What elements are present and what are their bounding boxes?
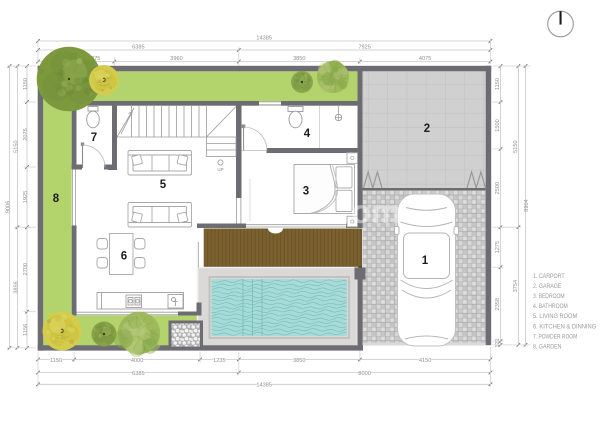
svg-text:1156: 1156 <box>23 324 29 336</box>
svg-text:1925: 1925 <box>23 191 29 203</box>
svg-text:121: 121 <box>495 338 501 347</box>
svg-text:2. GARAGE: 2. GARAGE <box>533 283 561 290</box>
svg-text:3850: 3850 <box>293 56 305 62</box>
svg-text:6: 6 <box>121 251 127 263</box>
svg-text:9006: 9006 <box>6 201 12 213</box>
svg-text:3. BEDROOM: 3. BEDROOM <box>533 293 565 300</box>
svg-text:1500: 1500 <box>495 119 501 131</box>
svg-text:6. KITCHEN & DINNING: 6. KITCHEN & DINNING <box>533 323 596 330</box>
svg-text:3856: 3856 <box>13 281 19 293</box>
svg-text:UP: UP <box>217 167 223 172</box>
svg-text:1150: 1150 <box>23 78 29 90</box>
svg-text:7. POWDER ROOM: 7. POWDER ROOM <box>533 333 577 340</box>
svg-text:1150: 1150 <box>495 78 501 90</box>
svg-text:8. GARDEN: 8. GARDEN <box>533 344 562 351</box>
svg-text:4075: 4075 <box>419 56 431 62</box>
svg-text:1235: 1235 <box>213 358 225 364</box>
svg-text:8904: 8904 <box>524 199 530 211</box>
svg-text:1. CARPORT: 1. CARPORT <box>533 273 565 280</box>
svg-text:5150: 5150 <box>513 140 519 152</box>
svg-text:5: 5 <box>160 179 167 191</box>
svg-text:2: 2 <box>424 123 430 135</box>
svg-text:4000: 4000 <box>131 358 143 364</box>
svg-text:3754: 3754 <box>513 280 519 292</box>
svg-text:14385: 14385 <box>256 383 272 389</box>
svg-text:1150: 1150 <box>50 358 62 364</box>
svg-text:2358: 2358 <box>495 298 501 310</box>
svg-text:1275: 1275 <box>495 241 501 253</box>
svg-text:6385: 6385 <box>132 371 144 377</box>
svg-text:8000: 8000 <box>358 371 370 377</box>
svg-text:8: 8 <box>53 193 60 205</box>
svg-text:4150: 4150 <box>419 358 431 364</box>
svg-text:5. LIVING ROOM: 5. LIVING ROOM <box>533 313 577 320</box>
svg-text:7: 7 <box>91 132 97 144</box>
svg-text:3850: 3850 <box>293 358 305 364</box>
svg-text:3960: 3960 <box>170 56 182 62</box>
svg-text:3: 3 <box>303 186 309 198</box>
svg-text:7925: 7925 <box>358 45 370 51</box>
svg-text:6385: 6385 <box>132 45 144 51</box>
svg-text:4: 4 <box>304 128 311 140</box>
svg-text:2500: 2500 <box>495 182 501 194</box>
svg-text:om: om <box>351 193 401 230</box>
svg-text:1: 1 <box>422 255 429 267</box>
svg-text:4. BATHROOM: 4. BATHROOM <box>533 303 568 310</box>
svg-text:2700: 2700 <box>23 263 29 275</box>
svg-text:2075: 2075 <box>23 128 29 140</box>
svg-text:5150: 5150 <box>13 140 19 152</box>
svg-text:14385: 14385 <box>256 36 272 42</box>
